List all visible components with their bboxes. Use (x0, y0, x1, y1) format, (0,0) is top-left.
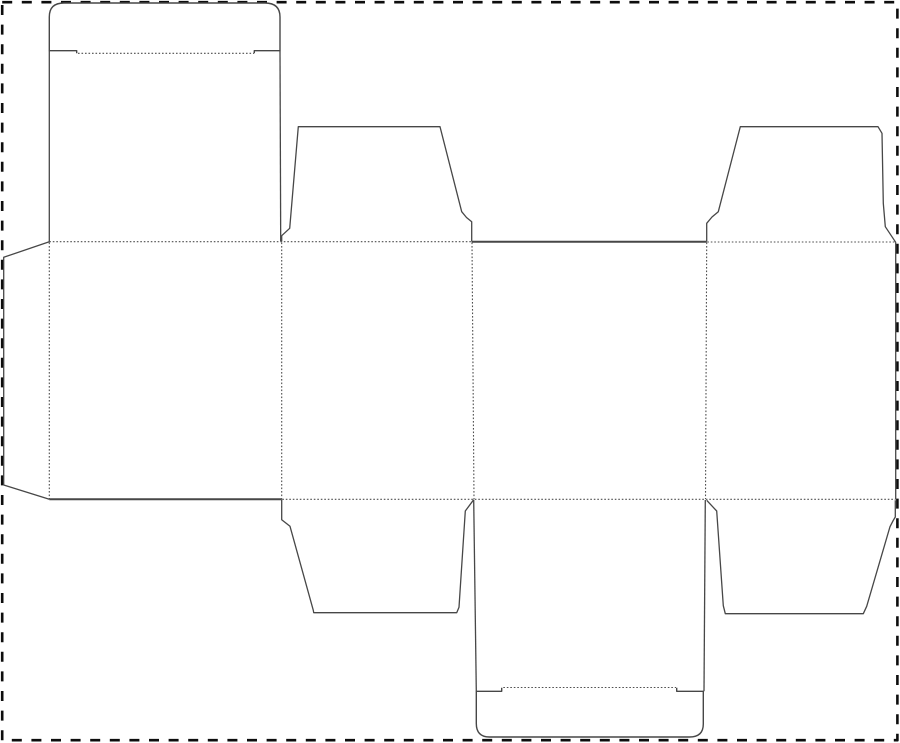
vertical-fold-panel-2-3 (472, 243, 474, 500)
bottom-left-flap-outline (282, 500, 474, 613)
top-panel-right-edge (280, 51, 281, 242)
top-tuck-flap-outline (49, 3, 280, 53)
dieline-canvas (0, 0, 900, 743)
selection-border (2, 2, 897, 740)
bottom-tuck-flap-outline (476, 688, 703, 737)
bottom-panel-right-edge (704, 500, 705, 691)
vertical-fold-panel-3-4 (706, 243, 707, 500)
top-right-flap-outline (707, 127, 896, 243)
left-dust-flap-outline (4, 242, 50, 500)
bottom-right-flap-outline (707, 500, 896, 613)
top-left-flap-outline (282, 127, 472, 242)
bottom-panel-left-edge (474, 500, 477, 692)
dieline-svg (0, 0, 900, 743)
